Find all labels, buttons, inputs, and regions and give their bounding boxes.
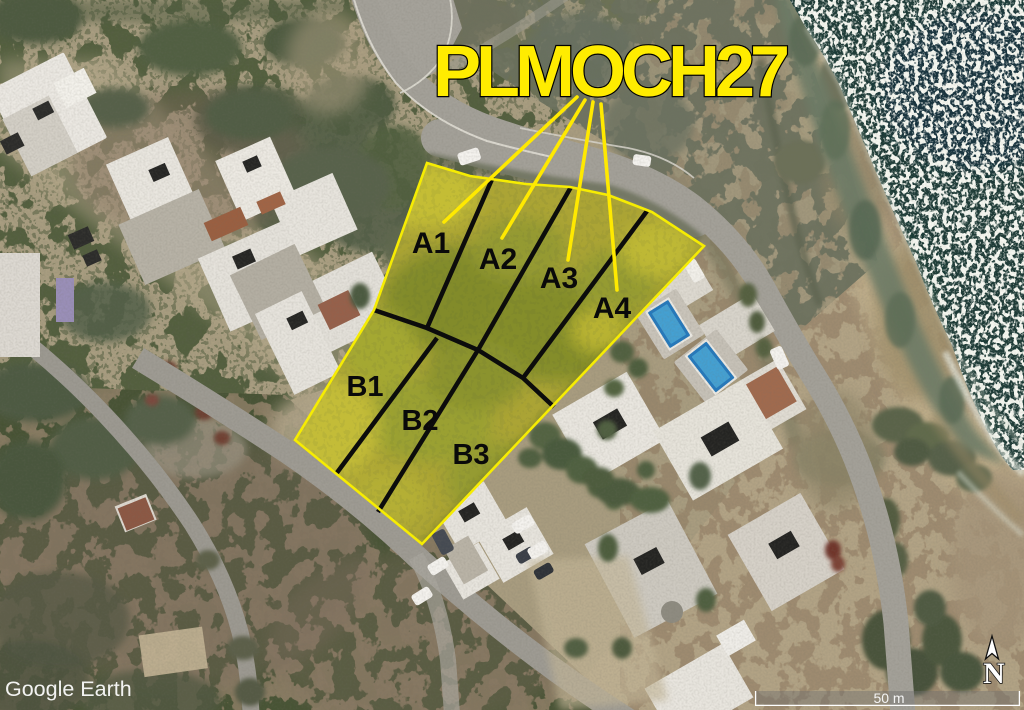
svg-text:A3: A3 xyxy=(540,262,578,295)
svg-text:50 m: 50 m xyxy=(873,690,904,706)
svg-text:B2: B2 xyxy=(401,405,438,437)
svg-text:Google Earth: Google Earth xyxy=(5,677,132,701)
svg-text:N: N xyxy=(983,657,1005,690)
svg-text:A1: A1 xyxy=(412,227,450,260)
svg-text:A2: A2 xyxy=(479,243,517,276)
svg-text:PLMOCH27: PLMOCH27 xyxy=(433,32,787,112)
svg-text:B3: B3 xyxy=(452,439,489,471)
svg-text:A4: A4 xyxy=(593,292,632,325)
svg-text:B1: B1 xyxy=(346,371,383,403)
